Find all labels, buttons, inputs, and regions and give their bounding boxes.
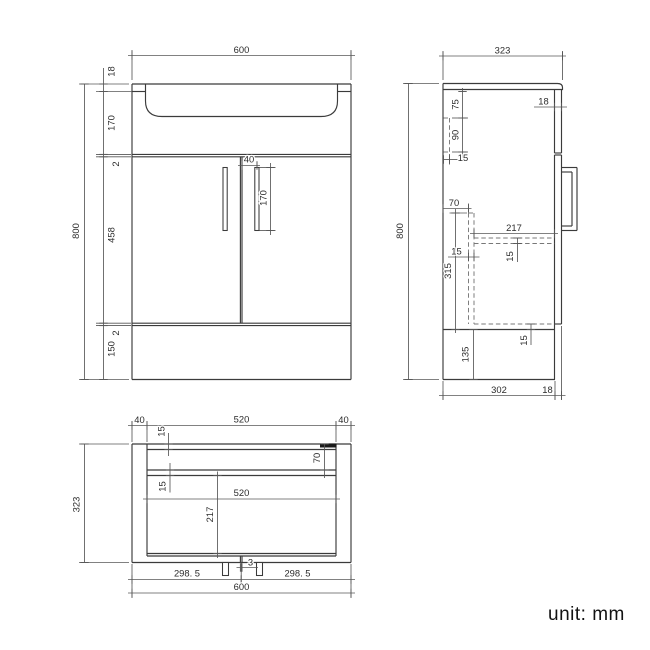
dimension: 7590 (449, 88, 466, 158)
dimension-label: 15 (156, 481, 167, 491)
dimension-label: 70 (311, 453, 322, 463)
technical-drawing: 6008001817024582150401703238001875901570… (0, 0, 650, 650)
dimension-label: 170 (257, 190, 268, 206)
dimension-label: 75 (449, 99, 460, 109)
dimension-label: 2 (110, 161, 121, 166)
dimension-label: 600 (234, 581, 250, 592)
handle-outline (257, 563, 263, 576)
dimension: 800 (70, 84, 89, 380)
dimension-label: 70 (449, 197, 459, 208)
profile-path (146, 84, 338, 117)
handle-outline (223, 563, 229, 576)
front-view: 600800181702458215040170 (70, 0, 555, 380)
dimension: 520 (143, 487, 340, 503)
dimension-label: 15 (458, 152, 468, 163)
dimension: 30218 (439, 384, 566, 400)
dimension-label: 15 (504, 251, 515, 261)
dimension-label: 15 (155, 426, 166, 436)
dimension-label: 3 (248, 556, 253, 567)
dimension-label: 135 (459, 347, 470, 363)
dimension: 15 (155, 426, 172, 456)
unit-note: unit: mm (548, 604, 625, 626)
dimension-label: 298. 5 (284, 567, 310, 578)
profile-path (443, 84, 563, 90)
dimension-label: 18 (538, 95, 548, 106)
dimension-label: 40 (244, 153, 254, 164)
plan-view: 40520401570155202173298. 5298. 5600323 (70, 413, 355, 598)
dimension: 15 (444, 152, 469, 164)
dimension: 323 (439, 44, 566, 60)
dimension-label: 2 (110, 330, 121, 335)
dimension: 135 (459, 330, 477, 380)
dimension: 40 (238, 153, 260, 169)
dimension: 3 (237, 556, 259, 571)
dimension-label: 302 (491, 384, 507, 395)
dimension-label: 15 (518, 335, 529, 345)
dimension-label: 170 (105, 115, 116, 131)
dimension-label: 600 (234, 44, 250, 55)
drawing-sheet: 6008001817024582150401703238001875901570… (0, 0, 650, 650)
dimension-label: 323 (70, 497, 81, 513)
dimension: 217 (204, 472, 222, 559)
dimension-label: 800 (394, 223, 405, 239)
side-view: 323800187590157031515217151513530218 (394, 44, 577, 400)
dimension: 600 (128, 581, 355, 597)
dimension-label: 217 (506, 222, 522, 233)
dimension-label: 40 (338, 414, 348, 425)
dimension: 15 (448, 245, 480, 261)
dimension-label: 520 (234, 413, 250, 424)
dimension-label: 323 (495, 44, 511, 55)
dimension-label: 18 (105, 66, 116, 76)
dimension: 70 (443, 197, 472, 213)
dimension: 15 (504, 238, 522, 262)
dimension-label: 298. 5 (174, 567, 200, 578)
handle-outline (223, 168, 227, 231)
dimension-label: 150 (105, 341, 116, 357)
dimension: 15 (156, 463, 174, 493)
dimension: 217 (470, 222, 558, 238)
dimension: 170 (257, 163, 274, 235)
dimension-label: 520 (234, 487, 250, 498)
dimension-label: 800 (70, 223, 81, 239)
dimension: 15 (518, 324, 535, 346)
dimension-label: 90 (449, 130, 460, 140)
dimension: 800 (394, 84, 413, 380)
dimension-label: 40 (134, 414, 144, 425)
dimension-label: 315 (442, 263, 453, 279)
dimension: 315 (442, 209, 460, 333)
dimension: 1817024582150 (99, 66, 121, 379)
dimension: 323 (70, 444, 88, 563)
dimension: 600 (128, 44, 355, 60)
dimension-label: 18 (542, 384, 552, 395)
dimension-label: 458 (105, 227, 116, 243)
dimension-label: 217 (204, 507, 215, 523)
dimension-label: 15 (451, 245, 461, 256)
